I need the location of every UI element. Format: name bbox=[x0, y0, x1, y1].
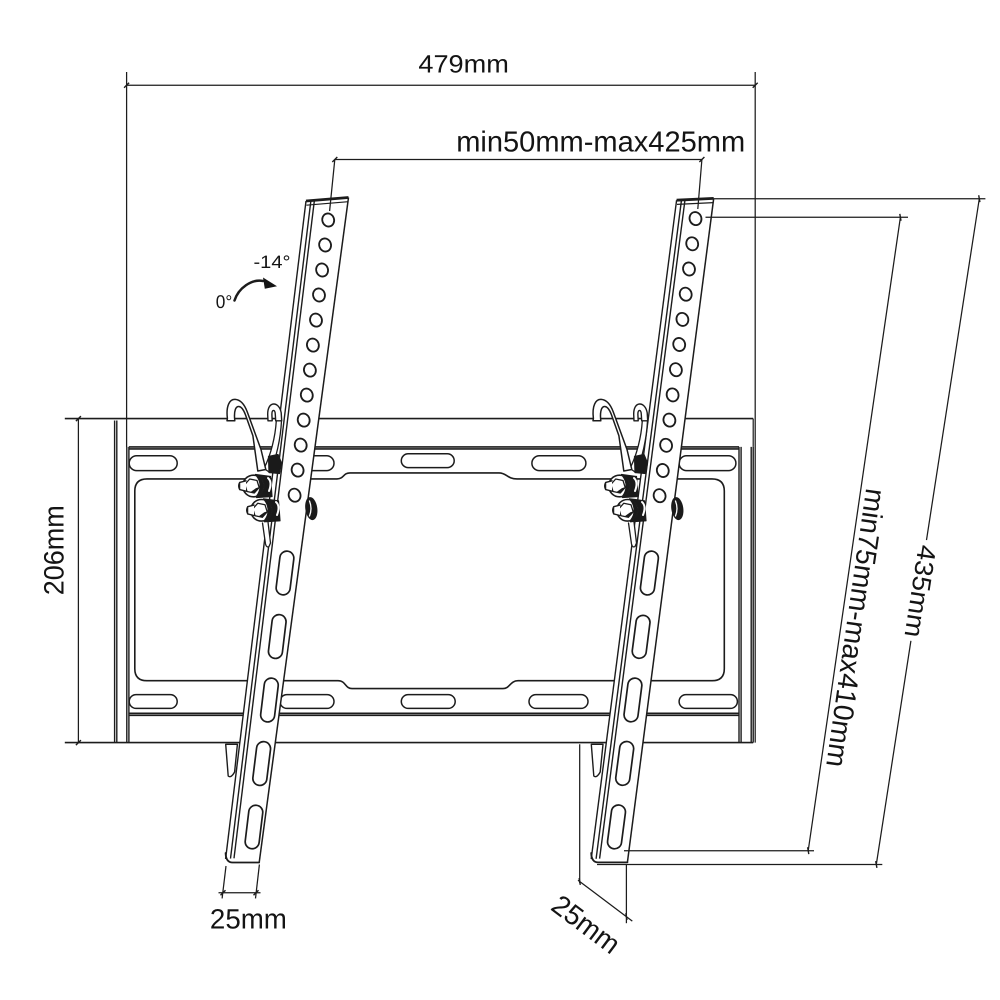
svg-text:0°: 0° bbox=[216, 291, 233, 312]
svg-text:-14°: -14° bbox=[254, 252, 291, 272]
svg-text:25mm: 25mm bbox=[210, 904, 287, 935]
svg-text:479mm: 479mm bbox=[418, 51, 509, 79]
svg-text:206mm: 206mm bbox=[39, 505, 70, 595]
svg-text:min50mm-max425mm: min50mm-max425mm bbox=[456, 127, 745, 159]
